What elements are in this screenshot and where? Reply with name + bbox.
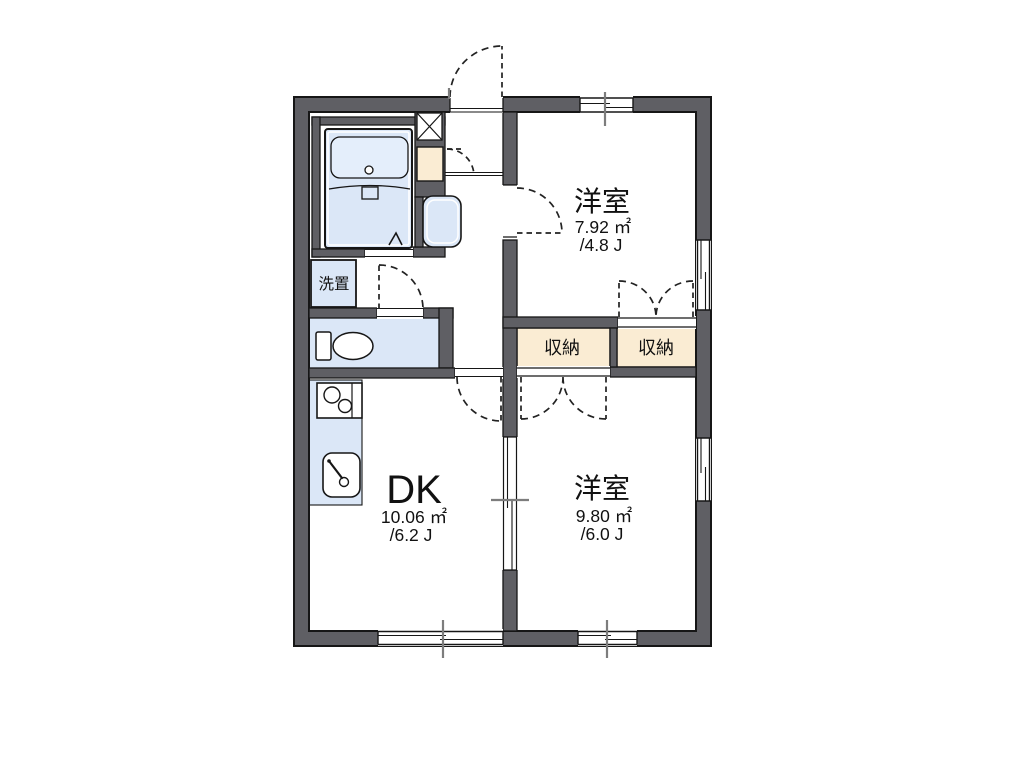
toilet-door-opening (377, 307, 423, 319)
closet-right-label: 収納 (638, 338, 674, 358)
closet-left-opening (517, 366, 610, 378)
bath-wall-bottom-right (413, 247, 445, 257)
shoe-cabinet (417, 147, 443, 181)
dk-door-opening (455, 367, 503, 379)
top-room-name: 洋室 (574, 186, 630, 217)
top-room-tatami: /4.8 J (580, 235, 623, 255)
bath-entry-opening (365, 248, 413, 258)
toilet-right-wall (439, 308, 453, 368)
basin-back-wall (415, 197, 423, 247)
bathtub-drain-icon (365, 166, 373, 174)
dk-area: 10.06 ㎡ (381, 507, 448, 527)
dk-tatami: /6.2 J (390, 525, 433, 545)
bath-faucet (362, 187, 378, 199)
wall-below-closets (610, 367, 696, 377)
wall-above-toilet-left (309, 308, 377, 318)
entrance-step-line (445, 173, 503, 176)
dk-door-swing (457, 377, 501, 421)
top-room-area: 7.92 ㎡ (575, 217, 632, 237)
toilet-door-swing (379, 265, 423, 309)
washbasin (423, 196, 461, 247)
window-bottom-room-east (696, 438, 711, 501)
window-top-room-north (580, 96, 633, 113)
bottom-room-area: 9.80 ㎡ (576, 506, 633, 526)
toilet-tank (316, 332, 331, 360)
meter-box (417, 113, 442, 140)
label-dk: DK 10.06 ㎡ /6.2 J (381, 468, 448, 545)
stove (317, 383, 362, 418)
closet-divider-wall (610, 328, 617, 367)
floorplan-canvas: 洗置 (0, 0, 1016, 772)
entrance-door-swing (450, 46, 502, 97)
laundry-space: 洗置 (311, 260, 356, 307)
wall-center-bottom (503, 570, 517, 631)
closet-left-label: 収納 (544, 338, 580, 358)
toilet-bottom-wall (309, 368, 455, 378)
window-dk-south (378, 629, 503, 646)
label-bottom-western-room: 洋室 9.80 ㎡ /6.0 J (574, 473, 633, 544)
laundry-label: 洗置 (318, 275, 349, 293)
window-top-room-east (696, 240, 711, 310)
closet-left-door-swing (521, 377, 606, 419)
wall-center-mid (503, 240, 517, 437)
bottom-room-name: 洋室 (574, 473, 630, 504)
sliding-door-dk (502, 437, 518, 570)
closet-right-opening (618, 316, 696, 329)
unit-bath (325, 129, 412, 248)
label-top-western-room: 洋室 7.92 ㎡ /4.8 J (574, 186, 632, 255)
closet-right-door-swing (619, 281, 693, 317)
top-room-door-swing (517, 188, 562, 233)
wall-center-top (503, 112, 517, 185)
bath-wall-left (312, 117, 320, 257)
toilet-bowl (333, 333, 373, 360)
bottom-room-tatami: /6.0 J (581, 524, 624, 544)
wall-above-closets (503, 317, 618, 328)
kitchen-sink (323, 453, 360, 497)
entrance-opening (450, 96, 503, 113)
floorplan-drawing: 洗置 (0, 0, 1016, 772)
top-room-door-opening (502, 185, 518, 237)
bath-wall-bottom-left (312, 249, 365, 257)
dk-name: DK (386, 468, 442, 512)
toilet (316, 332, 373, 360)
